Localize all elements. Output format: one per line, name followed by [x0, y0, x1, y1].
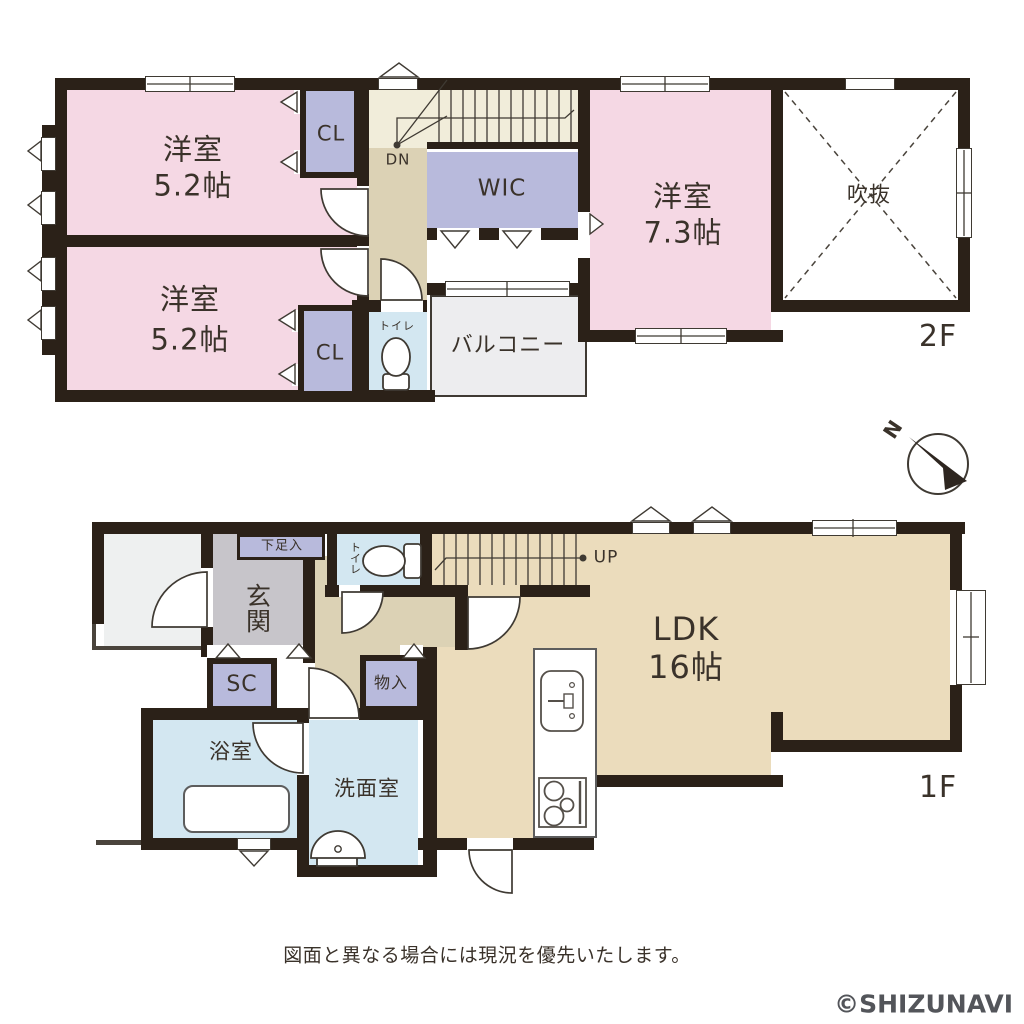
floor-plan-page: 洋室 5.2帖 洋室 5.2帖 洋室 7.3帖 CL CL WIC DN 吹抜 … [0, 0, 1024, 1024]
shoe-cabinet-label: 下足入 [261, 540, 303, 553]
room2-name-label: 洋室 [160, 286, 220, 315]
balcony-label: バルコニー [451, 335, 566, 357]
room3-name-label: 洋室 [653, 183, 713, 212]
floor-label-1f: 1F [919, 773, 957, 803]
kitchen-stove-icon [539, 778, 586, 827]
toilet-1f-label: トイレ [350, 542, 361, 575]
plan-linework [0, 0, 1024, 1024]
floor-label-2f: 2F [919, 322, 957, 352]
toilet-2f-label: トイレ [379, 321, 415, 332]
opening-triangles [28, 63, 731, 866]
entrance-label: 玄関 [245, 583, 270, 633]
ldk-size-label: 16帖 [648, 651, 724, 683]
closet2-label: CL [316, 343, 344, 364]
stairs-up-label: UP [594, 550, 619, 567]
room1-size-label: 5.2帖 [153, 172, 232, 201]
washbasin-icon [311, 831, 365, 866]
wic-label: WIC [478, 178, 527, 201]
toilet-icon-2f [382, 338, 410, 390]
washroom-label: 洗面室 [334, 779, 400, 800]
ldk-name-label: LDK [653, 613, 719, 645]
compass-icon [908, 434, 968, 494]
room3-size-label: 7.3帖 [643, 219, 722, 248]
disclaimer-text: 図面と異なる場合には現況を優先いたします。 [283, 947, 691, 966]
stairs-dn-dot [394, 142, 401, 149]
void-label: 吹抜 [847, 185, 891, 206]
watermark-text: ©SHIZUNAVI [834, 992, 1013, 1017]
room2-size-label: 5.2帖 [150, 326, 229, 355]
closet1-label: CL [317, 124, 345, 145]
room1-name-label: 洋室 [163, 136, 223, 165]
bathroom-label: 浴室 [209, 742, 253, 763]
stairs-2f-lines [397, 80, 574, 145]
window-marks [147, 76, 979, 683]
shoe-closet-label: SC [226, 674, 257, 696]
toilet-icon-1f [363, 544, 421, 578]
kitchen-sink-icon [541, 671, 583, 731]
stairs-dn-label: DN [386, 153, 411, 168]
storage-label: 物入 [374, 675, 408, 691]
stairs-up-dot [580, 555, 587, 562]
stairs-1f-lines [435, 534, 583, 585]
